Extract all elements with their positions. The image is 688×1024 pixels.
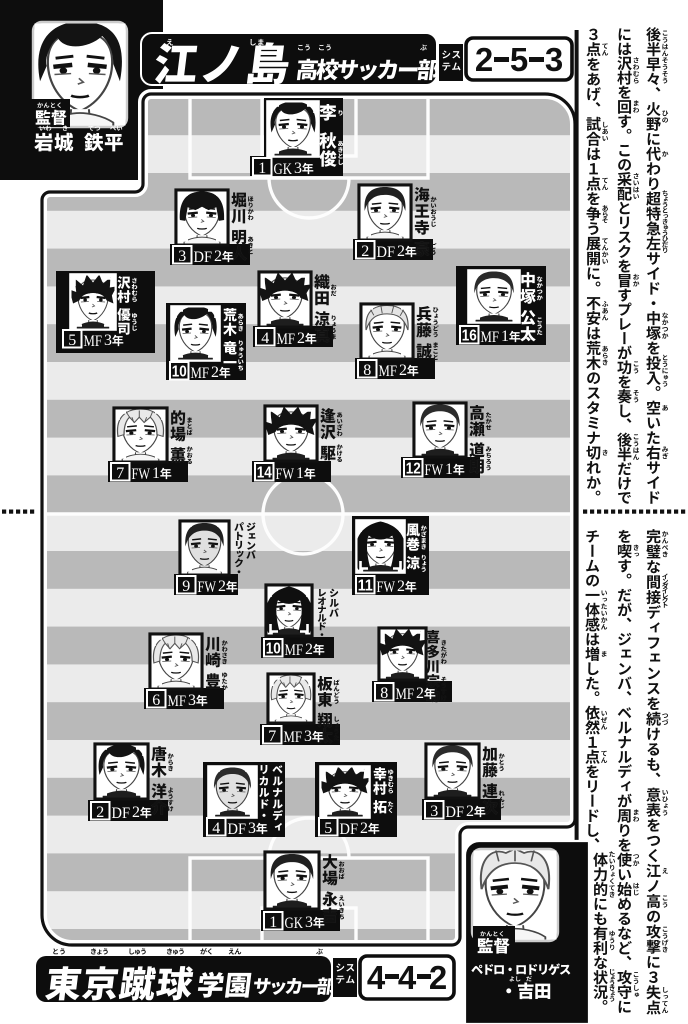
svg-text:2: 2 xyxy=(399,362,407,379)
svg-text:10: 10 xyxy=(266,641,281,658)
svg-text:MF: MF xyxy=(84,333,103,350)
svg-text:8: 8 xyxy=(380,685,388,702)
svg-text:1: 1 xyxy=(258,160,266,177)
svg-text:MF: MF xyxy=(277,331,296,348)
svg-text:FW: FW xyxy=(377,579,396,596)
svg-text:1: 1 xyxy=(501,328,509,345)
svg-text:2: 2 xyxy=(397,578,405,595)
svg-text:2: 2 xyxy=(475,41,493,78)
svg-text:5: 5 xyxy=(68,332,76,349)
svg-text:3: 3 xyxy=(188,692,196,709)
svg-text:3: 3 xyxy=(294,160,302,177)
svg-text:2: 2 xyxy=(297,330,305,347)
svg-text:3: 3 xyxy=(104,332,112,349)
svg-text:16: 16 xyxy=(462,328,477,345)
svg-text:2: 2 xyxy=(96,804,104,821)
svg-text:GK: GK xyxy=(285,915,304,932)
svg-text:4: 4 xyxy=(367,959,386,996)
svg-text:12: 12 xyxy=(406,461,421,478)
svg-text:MF: MF xyxy=(396,686,415,703)
svg-text:3: 3 xyxy=(248,820,256,837)
svg-text:3: 3 xyxy=(305,914,313,931)
svg-text:6: 6 xyxy=(152,692,160,709)
svg-text:DF: DF xyxy=(446,804,465,821)
svg-text:7: 7 xyxy=(116,465,124,482)
svg-text:FW: FW xyxy=(132,466,151,483)
svg-text:3: 3 xyxy=(304,728,312,745)
svg-text:MF: MF xyxy=(191,365,210,382)
svg-text:1: 1 xyxy=(296,465,304,482)
svg-text:8: 8 xyxy=(363,362,371,379)
svg-text:10: 10 xyxy=(172,364,187,381)
svg-text:3: 3 xyxy=(178,248,186,265)
svg-text:2: 2 xyxy=(214,248,222,265)
svg-text:9: 9 xyxy=(182,578,190,595)
svg-text:2: 2 xyxy=(211,364,219,381)
svg-text:5: 5 xyxy=(510,41,528,78)
svg-text:1: 1 xyxy=(269,914,277,931)
svg-text:FW: FW xyxy=(276,466,295,483)
svg-text:2: 2 xyxy=(416,685,424,702)
svg-text:DF: DF xyxy=(228,821,247,838)
svg-text:DF: DF xyxy=(377,244,396,261)
svg-text:MF: MF xyxy=(285,642,304,659)
svg-text:DF: DF xyxy=(112,805,131,822)
svg-text:4: 4 xyxy=(398,959,417,996)
svg-text:2: 2 xyxy=(132,804,140,821)
svg-text:5: 5 xyxy=(324,820,332,837)
svg-text:2: 2 xyxy=(429,959,447,996)
svg-text:1: 1 xyxy=(445,461,453,478)
svg-text:DF: DF xyxy=(194,249,213,266)
svg-text:2: 2 xyxy=(218,578,226,595)
svg-text:GK: GK xyxy=(274,161,293,178)
svg-text:14: 14 xyxy=(257,465,272,482)
svg-text:4: 4 xyxy=(212,820,220,837)
svg-text:2: 2 xyxy=(305,641,313,658)
svg-text:1: 1 xyxy=(152,465,160,482)
svg-text:FW: FW xyxy=(198,579,217,596)
svg-text:MF: MF xyxy=(481,329,500,346)
svg-text:2: 2 xyxy=(360,820,368,837)
svg-text:2: 2 xyxy=(397,243,405,260)
svg-text:3: 3 xyxy=(545,41,563,78)
svg-text:FW: FW xyxy=(425,462,444,479)
svg-text:DF: DF xyxy=(340,821,359,838)
svg-text:7: 7 xyxy=(268,728,276,745)
svg-text:11: 11 xyxy=(358,578,373,595)
svg-text:3: 3 xyxy=(430,803,438,820)
svg-text:MF: MF xyxy=(168,693,187,710)
svg-text:2: 2 xyxy=(361,243,369,260)
svg-text:MF: MF xyxy=(379,363,398,380)
svg-text:MF: MF xyxy=(284,729,303,746)
svg-text:2: 2 xyxy=(466,803,474,820)
svg-text:4: 4 xyxy=(261,330,269,347)
